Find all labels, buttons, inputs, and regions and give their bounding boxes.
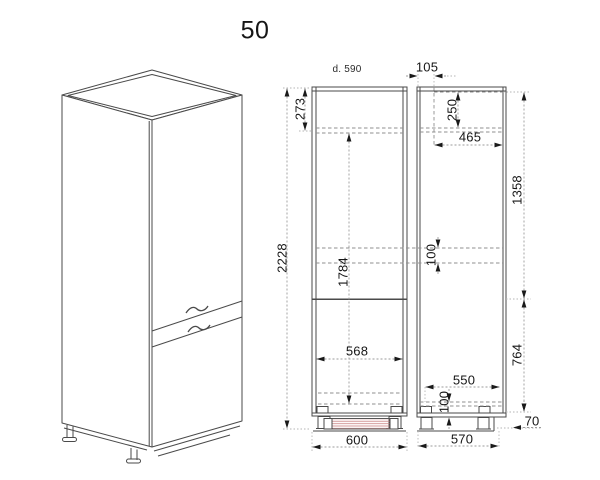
dim-label-plinth-height: 70 (525, 415, 540, 428)
dim-label-base-depth: 570 (451, 433, 473, 446)
dim-label-total-height: 2228 (276, 243, 289, 273)
side-leg (421, 418, 432, 430)
corner-bracket (421, 407, 432, 414)
drawer-hatch-cap (390, 419, 398, 430)
side-leg (478, 418, 489, 430)
dim-label-overall-width: 600 (346, 434, 368, 447)
corner-bracket (317, 407, 328, 414)
dim-label-depth: d. 590 (332, 65, 361, 75)
cabinet-3d-view (62, 70, 242, 463)
dim-label-top-recess: 250 (446, 99, 459, 121)
corner-bracket (391, 407, 402, 414)
drawing-canvas: 50 d. 590 105 273 2228 250 465 1358 1784… (0, 0, 600, 480)
page-title: 50 (241, 19, 270, 44)
dim-label-interior-width: 568 (346, 345, 368, 358)
dim-label-lower-height: 764 (511, 344, 524, 366)
dim-label-bottom-rail: 100 (438, 391, 451, 413)
leg-foot-front-left (63, 438, 77, 442)
page: { "drawing": { "title": "50", "hatch_col… (0, 0, 600, 480)
leg-foot-front-center (127, 459, 141, 463)
dim-label-niche-height: 1784 (337, 257, 350, 287)
cabinet-leg-front-left (67, 425, 73, 438)
cabinet-leg-front-center (131, 448, 137, 460)
dim-label-top-offset: 273 (294, 98, 307, 120)
dim-label-upper-height: 1358 (511, 175, 524, 205)
dim-label-interior-depth: 465 (459, 131, 481, 144)
front-section-view (312, 87, 407, 431)
cabinet-left-face (62, 95, 152, 447)
corner-bracket (479, 407, 490, 414)
drawer-hatch (324, 419, 398, 430)
front-outline (312, 87, 407, 416)
dim-label-shelf-depth: 550 (453, 374, 475, 387)
dim-label-rail-height: 100 (425, 244, 438, 266)
cabinet-front-face (152, 95, 242, 447)
technical-drawing (0, 0, 600, 480)
dim-label-front-inset: 105 (416, 61, 438, 74)
drawer-hatch-cap (324, 419, 332, 430)
